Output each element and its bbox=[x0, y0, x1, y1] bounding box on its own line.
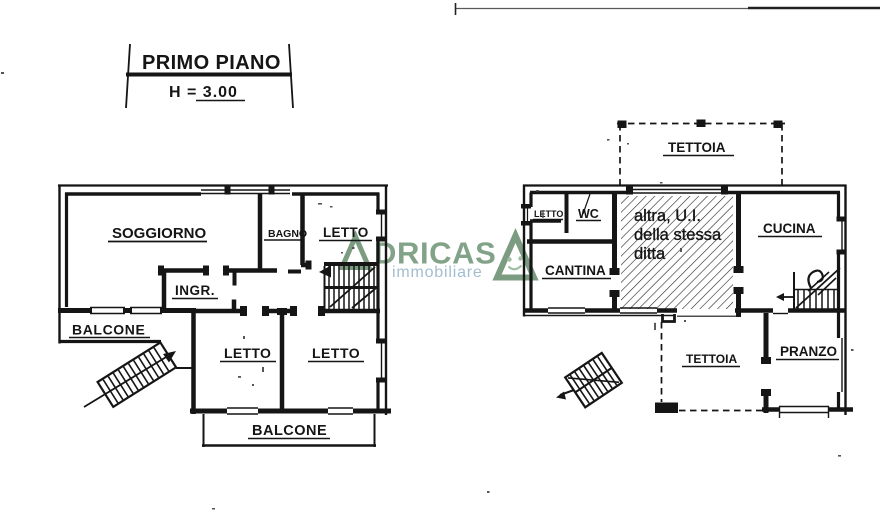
svg-text:BALCONE: BALCONE bbox=[252, 423, 327, 439]
svg-text:SOGGIORNO: SOGGIORNO bbox=[112, 225, 207, 242]
svg-text:LETTO: LETTO bbox=[312, 345, 360, 361]
svg-text:TETTOIA: TETTOIA bbox=[686, 352, 737, 366]
svg-text:LETTO: LETTO bbox=[224, 345, 271, 361]
svg-text:PRANZO: PRANZO bbox=[780, 344, 837, 359]
svg-text:H = 3.00: H = 3.00 bbox=[169, 84, 238, 101]
svg-text:CUCINA: CUCINA bbox=[763, 221, 816, 236]
svg-text:LETTO: LETTO bbox=[534, 209, 563, 219]
svg-text:WC: WC bbox=[578, 207, 599, 221]
svg-text:altra, U.I.: altra, U.I. bbox=[634, 207, 701, 225]
svg-text:ditta: ditta bbox=[634, 245, 666, 263]
svg-text:BAGNO: BAGNO bbox=[268, 228, 307, 240]
svg-text:immobiliare: immobiliare bbox=[392, 264, 483, 281]
svg-text:CANTINA: CANTINA bbox=[545, 263, 606, 278]
svg-text:TETTOIA: TETTOIA bbox=[668, 140, 726, 155]
svg-text:della stessa: della stessa bbox=[634, 226, 722, 244]
svg-text:PRIMO PIANO: PRIMO PIANO bbox=[142, 52, 281, 74]
svg-text:LETTO: LETTO bbox=[323, 225, 369, 240]
svg-text:INGR.: INGR. bbox=[175, 283, 215, 298]
svg-text:BALCONE: BALCONE bbox=[72, 322, 145, 338]
